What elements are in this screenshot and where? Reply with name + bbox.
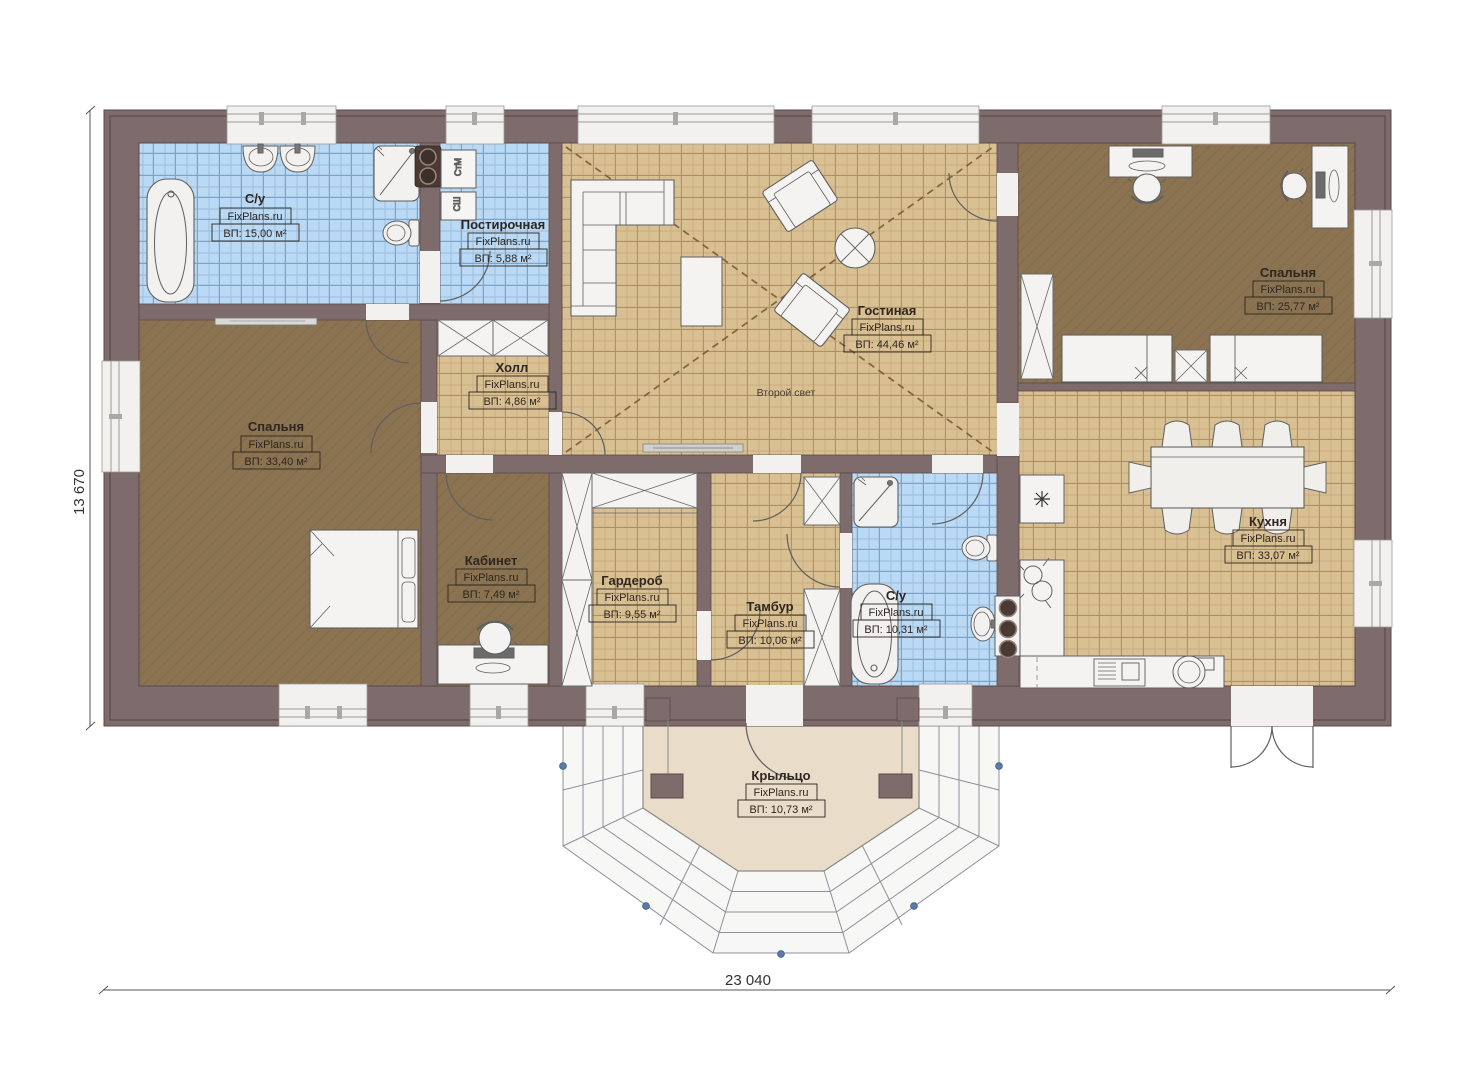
svg-text:С/у: С/у bbox=[245, 191, 266, 206]
svg-text:ВП: 9,55 м²: ВП: 9,55 м² bbox=[603, 609, 660, 621]
svg-text:Холл: Холл bbox=[496, 360, 529, 375]
svg-text:FixPlans.ru: FixPlans.ru bbox=[859, 322, 914, 334]
svg-text:ВП: 10,73 м²: ВП: 10,73 м² bbox=[749, 804, 813, 816]
svg-text:FixPlans.ru: FixPlans.ru bbox=[1240, 533, 1295, 545]
svg-text:Гардероб: Гардероб bbox=[601, 573, 662, 588]
svg-text:FixPlans.ru: FixPlans.ru bbox=[475, 236, 530, 248]
svg-text:С/у: С/у bbox=[886, 588, 907, 603]
svg-text:Постирочная: Постирочная bbox=[461, 217, 545, 232]
svg-text:Кабинет: Кабинет bbox=[465, 553, 518, 568]
svg-text:FixPlans.ru: FixPlans.ru bbox=[742, 618, 797, 630]
svg-text:ВП: 4,86 м²: ВП: 4,86 м² bbox=[483, 396, 540, 408]
svg-text:FixPlans.ru: FixPlans.ru bbox=[248, 439, 303, 451]
svg-text:Гостиная: Гостиная bbox=[858, 303, 917, 318]
svg-text:FixPlans.ru: FixPlans.ru bbox=[753, 787, 808, 799]
svg-text:FixPlans.ru: FixPlans.ru bbox=[604, 592, 659, 604]
svg-text:ВП: 7,49 м²: ВП: 7,49 м² bbox=[462, 589, 519, 601]
svg-text:FixPlans.ru: FixPlans.ru bbox=[868, 607, 923, 619]
svg-text:FixPlans.ru: FixPlans.ru bbox=[1260, 284, 1315, 296]
svg-text:FixPlans.ru: FixPlans.ru bbox=[463, 572, 518, 584]
svg-text:ВП: 10,31 м²: ВП: 10,31 м² bbox=[864, 624, 928, 636]
svg-text:Кухня: Кухня bbox=[1249, 514, 1287, 529]
svg-text:СтМ: СтМ bbox=[453, 158, 463, 176]
svg-text:Спальня: Спальня bbox=[1260, 265, 1316, 280]
svg-text:ВП: 10,06 м²: ВП: 10,06 м² bbox=[738, 635, 802, 647]
svg-text:ВП: 33,40 м²: ВП: 33,40 м² bbox=[244, 456, 308, 468]
svg-text:Тамбур: Тамбур bbox=[746, 599, 793, 614]
svg-text:FixPlans.ru: FixPlans.ru bbox=[227, 211, 282, 223]
svg-text:ВП: 15,00 м²: ВП: 15,00 м² bbox=[223, 228, 287, 240]
svg-text:ВП: 44,46 м²: ВП: 44,46 м² bbox=[855, 339, 919, 351]
svg-text:ВП: 5,88 м²: ВП: 5,88 м² bbox=[474, 253, 531, 265]
svg-text:Второй свет: Второй свет bbox=[757, 387, 816, 399]
svg-text:23 040: 23 040 bbox=[725, 972, 771, 989]
svg-text:13 670: 13 670 bbox=[71, 469, 88, 515]
svg-text:FixPlans.ru: FixPlans.ru bbox=[484, 379, 539, 391]
svg-text:СШ: СШ bbox=[452, 197, 462, 212]
svg-text:ВП: 25,77 м²: ВП: 25,77 м² bbox=[1256, 301, 1320, 313]
svg-text:Крыльцо: Крыльцо bbox=[751, 768, 810, 783]
svg-text:Спальня: Спальня bbox=[248, 419, 304, 434]
svg-text:ВП: 33,07 м²: ВП: 33,07 м² bbox=[1236, 550, 1300, 562]
